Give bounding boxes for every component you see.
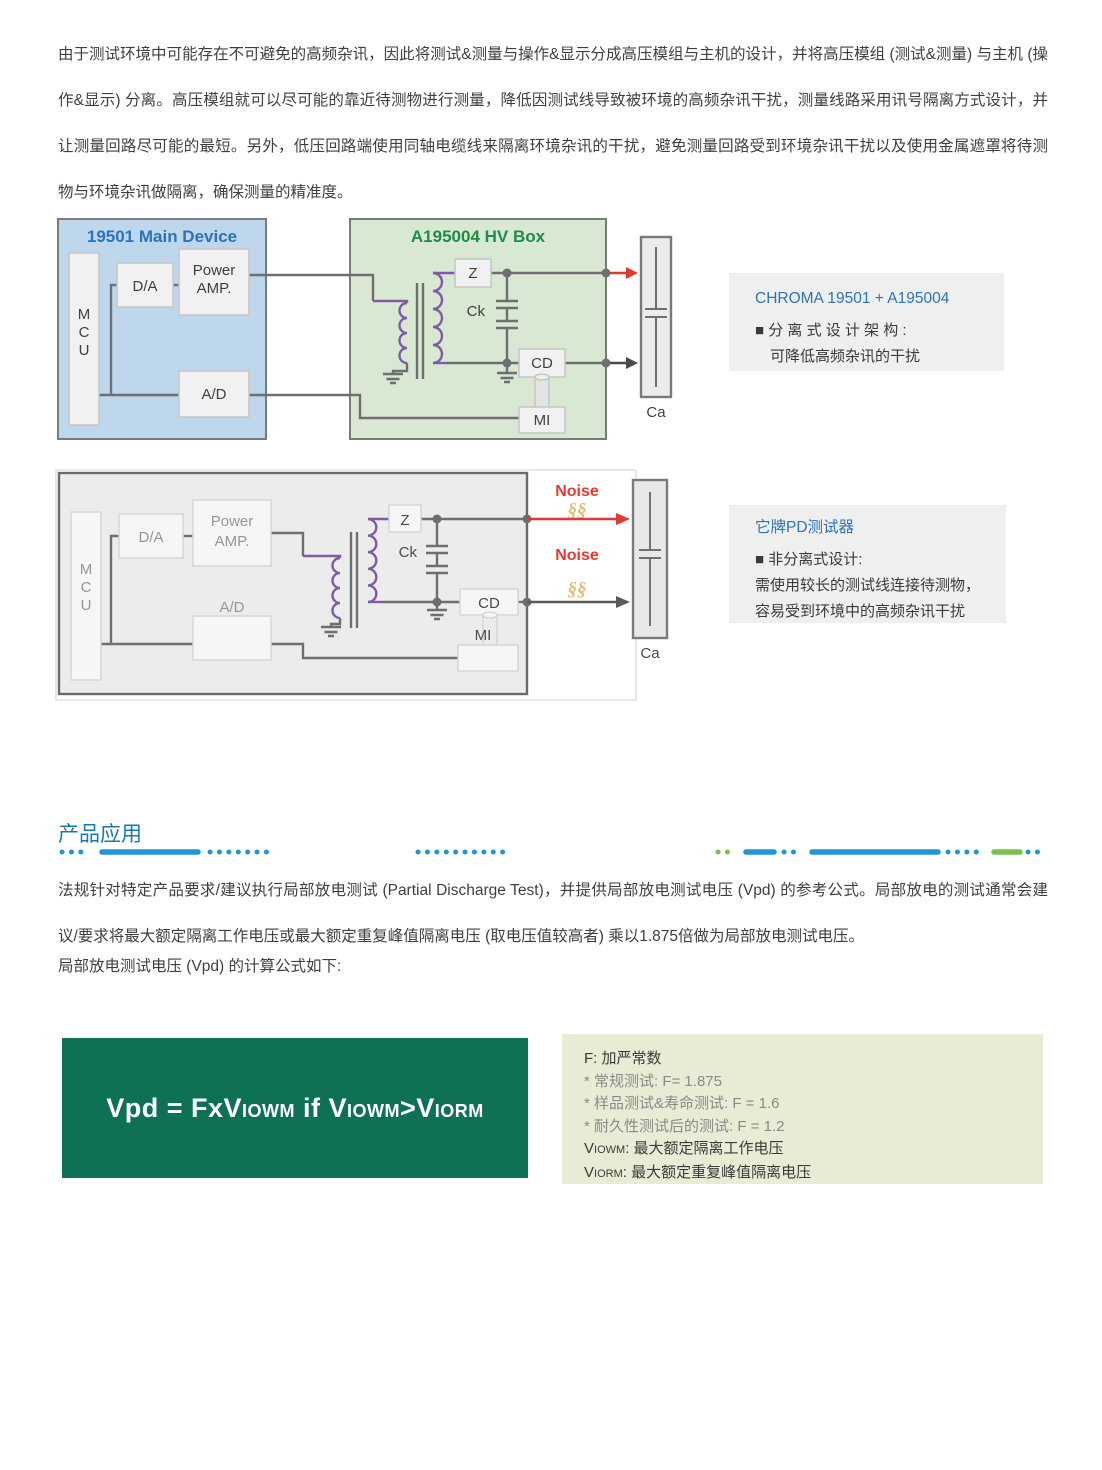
mi-label: MI — [475, 627, 492, 644]
cylinder-top — [535, 374, 549, 380]
ca-label: Ca — [640, 645, 660, 662]
legend-line: * 耐久性测试后的测试: F = 1.2 — [584, 1116, 1033, 1139]
note-box-competitor: 它牌PD测试器 ■ 非分离式设计: 需使用较长的测试线连接待测物， 容易受到环境… — [729, 505, 1006, 623]
mi-block — [458, 645, 518, 671]
cd-mi-cylinder — [535, 377, 549, 407]
formula-part: >V — [400, 1093, 435, 1123]
legend-line: VIORM: 最大额定重复峰值隔离电压 — [584, 1162, 1033, 1186]
formula-box: Vpd = FxVIOWM if VIOWM>VIORM — [62, 1038, 528, 1178]
section-divider — [58, 847, 1043, 857]
power-amp-label: Power — [193, 262, 236, 279]
note-line: ■ 分 离 式 设 计 架 构 : — [755, 318, 994, 344]
z-label: Z — [468, 265, 477, 282]
junction-dot — [503, 269, 512, 278]
circuit-diagram-nonseparated: M C U D/A Power AMP. A/D Z Ck CD MI Nois… — [55, 468, 677, 703]
z-label: Z — [400, 512, 409, 529]
da-label: D/A — [132, 278, 157, 295]
ck-label: Ck — [467, 303, 486, 320]
pd-formula: Vpd = FxVIOWM if VIOWM>VIORM — [106, 1093, 484, 1124]
legend-line: VIOWM: 最大额定隔离工作电压 — [584, 1138, 1033, 1162]
ca-label: Ca — [646, 404, 666, 421]
ad-label: A/D — [201, 386, 226, 403]
ad-label: A/D — [219, 599, 244, 616]
legend-text: : 最大额定隔离工作电压 — [625, 1140, 783, 1157]
power-amp-label: AMP. — [197, 280, 232, 297]
mcu-label: M — [80, 561, 93, 578]
single-unit-box — [59, 473, 527, 694]
main-device-title: 19501 Main Device — [87, 227, 237, 246]
note-line: 可降低高频杂讯的干扰 — [755, 344, 994, 370]
ca-device — [633, 480, 667, 638]
formula-part: if V — [295, 1093, 347, 1123]
legend-box: F: 加严常数 * 常规测试: F= 1.875 * 样品测试&寿命测试: F … — [562, 1034, 1043, 1184]
junction-dot — [602, 269, 611, 278]
cylinder-top — [483, 612, 497, 618]
hv-box-title: A195004 HV Box — [411, 227, 546, 246]
note-line: 容易受到环境中的高频杂讯干扰 — [755, 599, 996, 625]
note-title: CHROMA 19501 + A195004 — [755, 288, 994, 310]
noise-label-top: Noise — [555, 483, 599, 500]
formula-part: Vpd = FxV — [106, 1093, 242, 1123]
noise-symbol-bottom: §§ — [568, 579, 587, 600]
junction-dot — [433, 598, 442, 607]
junction-dot — [433, 515, 442, 524]
intro-paragraph: 由于测试环境中可能存在不可避免的高频杂讯，因此将测试&测量与操作&显示分成高压模… — [58, 32, 1048, 216]
legend-symbol: V — [584, 1140, 594, 1157]
legend-subscript: IOWM — [594, 1144, 625, 1156]
power-amp-label: AMP. — [215, 533, 250, 550]
output-arrow-black — [610, 357, 638, 369]
junction-dot — [503, 359, 512, 368]
note-title: 它牌PD测试器 — [755, 517, 996, 539]
legend-line: * 常规测试: F= 1.875 — [584, 1071, 1033, 1094]
formula-subscript: IOWM — [242, 1101, 295, 1121]
mcu-label: U — [79, 342, 90, 359]
document-page: 由于测试环境中可能存在不可避免的高频杂讯，因此将测试&测量与操作&显示分成高压模… — [0, 0, 1102, 1470]
ck-label: Ck — [399, 544, 418, 561]
mi-label: MI — [534, 412, 551, 429]
ad-block — [193, 616, 271, 660]
circuit-diagram-separated: 19501 Main Device A195004 HV Box M C U D… — [55, 213, 677, 445]
legend-line: * 样品测试&寿命测试: F = 1.6 — [584, 1093, 1033, 1116]
cd-label: CD — [531, 355, 553, 372]
mcu-label: U — [81, 597, 92, 614]
note-line: ■ 非分离式设计: — [755, 547, 996, 573]
mcu-label: C — [79, 324, 90, 341]
formula-intro: 局部放电测试电压 (Vpd) 的计算公式如下: — [58, 944, 1048, 990]
junction-dot — [602, 359, 611, 368]
da-label: D/A — [138, 529, 163, 546]
ca-device — [641, 237, 671, 397]
mcu-label: M — [78, 306, 91, 323]
mcu-label: C — [81, 579, 92, 596]
note-box-chroma: CHROMA 19501 + A195004 ■ 分 离 式 设 计 架 构 :… — [729, 273, 1004, 371]
note-line: 需使用较长的测试线连接待测物， — [755, 573, 996, 599]
formula-subscript: IORM — [435, 1101, 484, 1121]
formula-subscript: IOWM — [347, 1101, 400, 1121]
legend-subscript: IORM — [594, 1168, 623, 1180]
legend-symbol: V — [584, 1164, 594, 1181]
power-amp-label: Power — [211, 513, 254, 530]
legend-line: F: 加严常数 — [584, 1048, 1033, 1071]
cd-label: CD — [478, 595, 500, 612]
legend-text: : 最大额定重复峰值隔离电压 — [623, 1164, 811, 1181]
section-title: 产品应用 — [58, 818, 142, 848]
output-arrow-red — [610, 267, 638, 279]
noise-label-mid: Noise — [555, 547, 599, 564]
mcu-block — [71, 512, 101, 680]
hv-box — [350, 219, 606, 439]
